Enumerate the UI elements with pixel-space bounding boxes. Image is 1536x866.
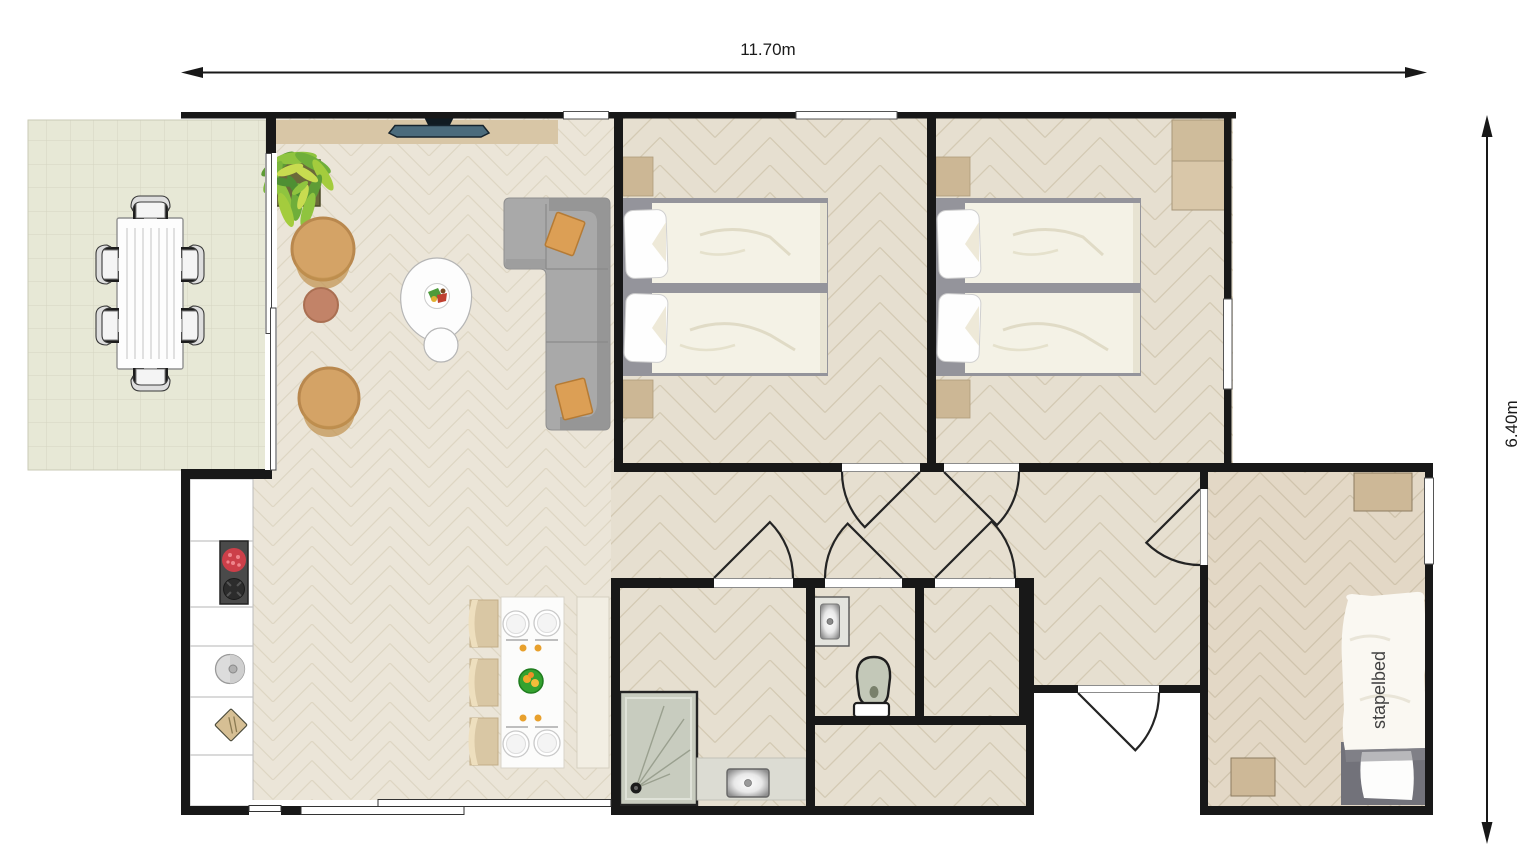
svg-text:11.70m: 11.70m xyxy=(740,40,795,59)
svg-text:stapelbed: stapelbed xyxy=(1369,651,1389,729)
svg-text:6.40m: 6.40m xyxy=(1502,400,1521,447)
